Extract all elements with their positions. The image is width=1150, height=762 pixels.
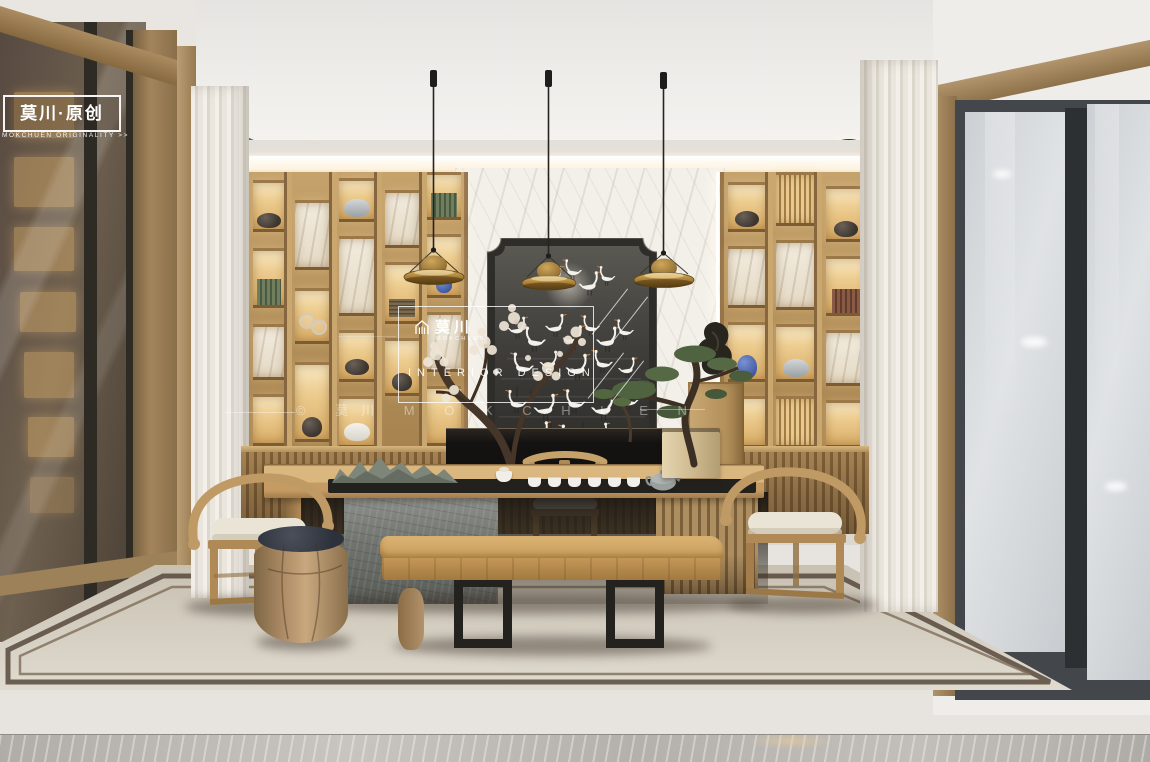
pendant-lamp (522, 70, 576, 290)
brand-mark-icon (413, 319, 431, 335)
watermark-line (640, 409, 705, 410)
studio-logo-subtitle: MOKCHUEN ORIGINALITY >> (2, 132, 132, 139)
watermark-line (225, 412, 295, 413)
watermark-line (338, 336, 396, 337)
pendant-lamp (404, 70, 464, 285)
studio-logo-text: 莫川·原创 (20, 104, 104, 123)
watermark-brand-en: MOKCHUEN (436, 336, 486, 342)
watermark-caption: INTERIOR DESIGN (408, 367, 596, 379)
watermark-brand-cn: 莫川 (435, 316, 473, 337)
tea-room-render: 莫川·原创 MOKCHUEN ORIGINALITY >> 莫川 MOKCHUE… (0, 0, 1150, 762)
watermark-box: 莫川 MOKCHUEN INTERIOR DESIGN (398, 306, 594, 403)
watermark-brand: 莫川 (413, 316, 473, 337)
pendant-lamp (634, 72, 694, 288)
studio-logo: 莫川·原创 (3, 95, 121, 132)
